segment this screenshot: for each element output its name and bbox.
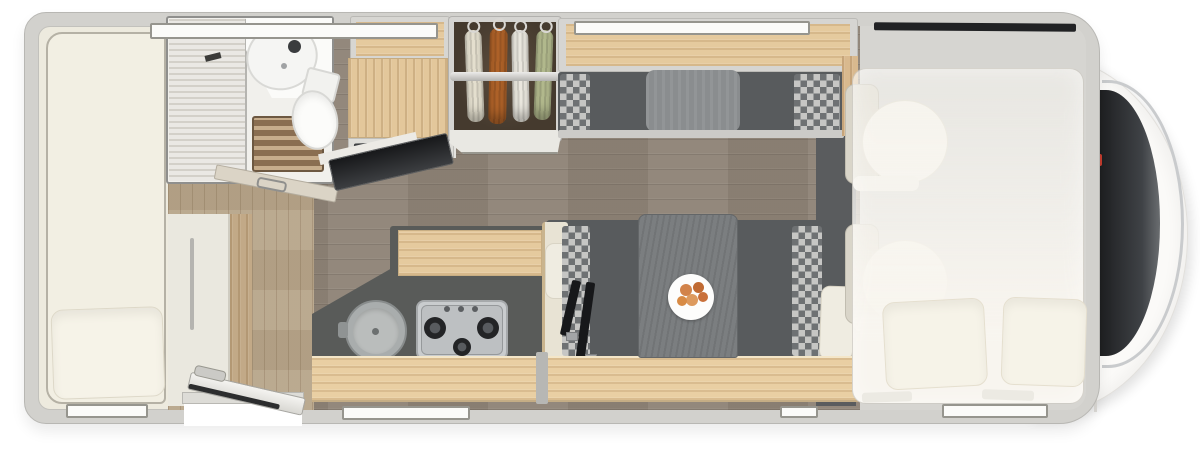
grab-rail-icon: [190, 238, 194, 330]
cab-door-window-line: [874, 22, 1076, 31]
travel-bench-cushion-left: [560, 74, 590, 132]
food-item-icon: [677, 296, 687, 306]
sink-handle-tab: [338, 322, 348, 338]
hob-knob-icon: [472, 306, 478, 312]
wardrobe-bottom-door: [450, 130, 562, 154]
hanger-hook-icon: [493, 18, 506, 31]
travel-bench-backrest-center: [646, 70, 740, 132]
drop-down-bed-pillow: [882, 297, 988, 390]
window-top-rear: [150, 23, 438, 39]
hob-knob-icon: [444, 306, 450, 312]
bed-frame-tab: [982, 389, 1034, 401]
hob-knob-icon: [458, 306, 464, 312]
travel-bench-cushion-right: [794, 74, 840, 132]
hob-burner: [453, 338, 471, 356]
motorhome-floorplan: [0, 0, 1200, 468]
drop-down-bed-pillow: [1000, 297, 1087, 388]
hanger-hook-icon: [467, 20, 480, 33]
wardrobe-rail: [450, 72, 562, 81]
window-top-dinette: [574, 21, 810, 35]
seatbox-plinth: [312, 356, 858, 402]
plinth-divider-post: [536, 352, 548, 404]
dinette-cushion-checker-right: [792, 226, 822, 356]
hob-burner: [424, 317, 446, 339]
food-item-icon: [698, 292, 708, 302]
shower-tambour-door: [169, 19, 247, 181]
window-bottom-small: [780, 406, 818, 418]
sink-knob-icon: [372, 328, 379, 335]
bed-pillow: [50, 306, 165, 400]
drain-icon: [281, 63, 287, 69]
seat-belt-buckle-icon: [566, 332, 578, 341]
worktop-flap: [398, 230, 542, 276]
window-bottom-rear: [66, 404, 148, 418]
faucet-icon: [288, 40, 301, 53]
window-bottom-kitchen: [342, 406, 470, 420]
hanger-hook-icon: [514, 20, 527, 33]
hob-burner: [477, 317, 499, 339]
fridge-cabinet: [348, 58, 448, 138]
window-bottom-cab: [942, 404, 1048, 418]
entry-door-frame-strip: [230, 214, 252, 406]
travel-bench-frame-rim: [558, 130, 844, 138]
food-item-icon: [686, 294, 698, 306]
bed-frame-tab: [862, 391, 912, 403]
